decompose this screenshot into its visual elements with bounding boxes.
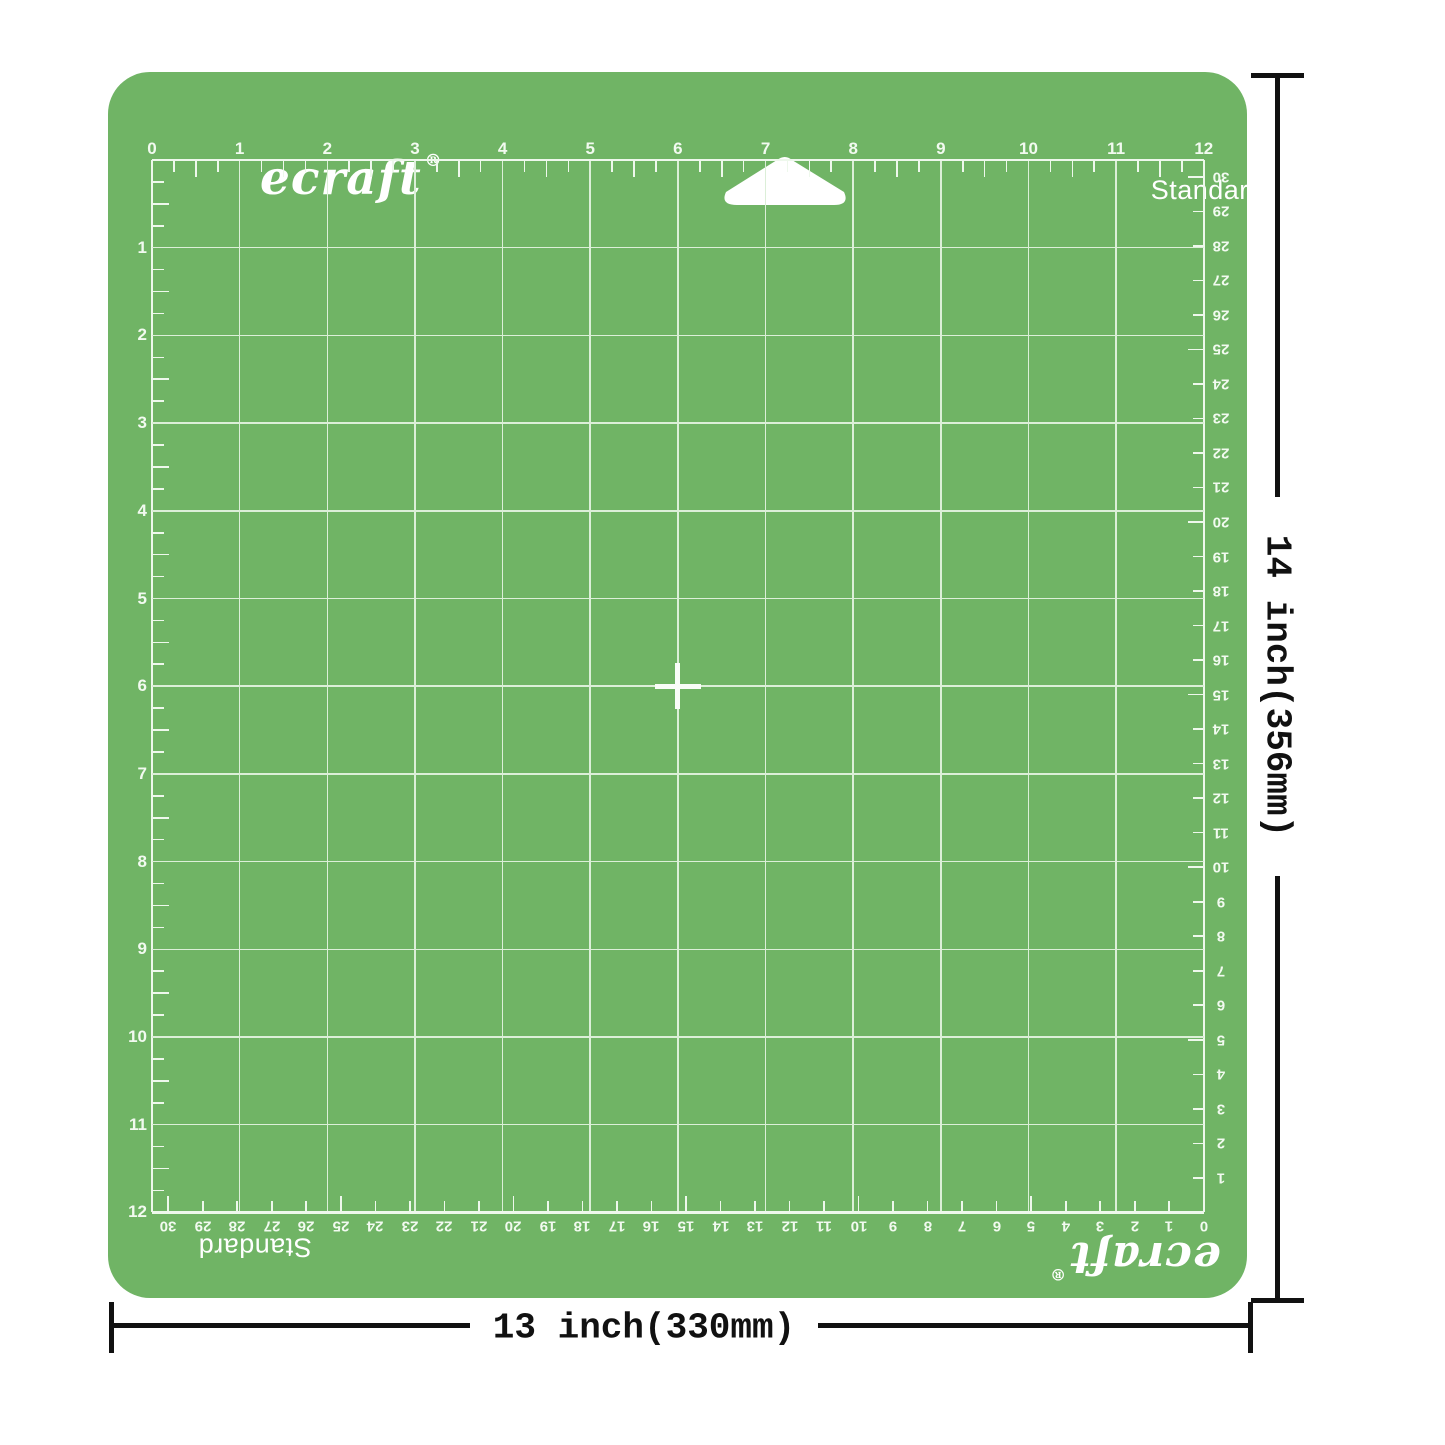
bottom-cm-number: 7 (958, 1218, 966, 1235)
top-ruler-tick (217, 160, 219, 172)
left-ruler-number: 4 (138, 501, 147, 521)
grid-line-horizontal (152, 247, 1204, 249)
bottom-cm-number: 6 (993, 1218, 1001, 1235)
right-cm-tick (1193, 245, 1204, 247)
right-cm-number: 14 (1212, 721, 1229, 738)
left-ruler-tick (152, 269, 164, 271)
top-ruler-tick (633, 160, 635, 177)
right-cm-number: 19 (1212, 548, 1229, 565)
left-ruler-tick (152, 751, 164, 753)
top-ruler-tick (1093, 160, 1095, 172)
top-ruler-tick (392, 160, 394, 172)
left-ruler-tick (152, 817, 169, 819)
right-cm-number: 9 (1217, 893, 1225, 910)
bottom-cm-number: 5 (1027, 1218, 1035, 1235)
left-ruler-tick (152, 554, 169, 556)
registered-trademark-bottom-icon: ® (1049, 1265, 1066, 1284)
top-ruler-tick (787, 160, 789, 172)
top-ruler-tick (611, 160, 613, 172)
left-ruler-tick (152, 1190, 164, 1192)
bottom-cm-tick (375, 1201, 377, 1212)
right-cm-tick (1193, 728, 1204, 730)
top-ruler-tick (458, 160, 460, 177)
right-cm-number: 24 (1212, 375, 1229, 392)
bottom-cm-tick (167, 1196, 169, 1212)
left-ruler-number: 1 (138, 238, 147, 258)
width-dimension-right-cap (1248, 1302, 1253, 1353)
right-cm-number: 1 (1217, 1169, 1225, 1186)
bottom-cm-number: 16 (643, 1218, 660, 1235)
top-ruler-tick (721, 160, 723, 177)
bottom-cm-number: 8 (923, 1218, 931, 1235)
grid-line-horizontal (152, 422, 1204, 424)
left-ruler-tick (152, 576, 164, 578)
right-cm-tick (1193, 625, 1204, 627)
height-dimension-line-lower (1275, 876, 1280, 1303)
right-cm-tick (1193, 1143, 1204, 1145)
right-cm-tick (1193, 1004, 1204, 1006)
bottom-cm-number: 25 (332, 1218, 349, 1235)
right-cm-tick (1193, 280, 1204, 282)
top-ruler-tick (743, 160, 745, 172)
bottom-cm-number: 21 (471, 1218, 488, 1235)
right-cm-tick (1188, 694, 1204, 696)
right-cm-tick (1193, 970, 1204, 972)
top-ruler-number: 2 (323, 139, 332, 159)
right-cm-tick (1193, 314, 1204, 316)
bottom-cm-tick (892, 1201, 894, 1212)
right-cm-number: 5 (1217, 1031, 1225, 1048)
right-cm-tick (1193, 418, 1204, 420)
left-ruler-tick (152, 466, 169, 468)
top-ruler-tick (655, 160, 657, 172)
top-ruler-tick (830, 160, 832, 172)
left-ruler-tick (152, 488, 164, 490)
top-ruler-tick (918, 160, 920, 172)
bottom-cm-tick (305, 1201, 307, 1212)
top-ruler-tick (1159, 160, 1161, 177)
top-ruler-tick (568, 160, 570, 172)
right-cm-number: 22 (1212, 444, 1229, 461)
left-ruler-tick (152, 707, 164, 709)
center-crosshair-vertical (675, 663, 680, 709)
bottom-cm-tick (1099, 1201, 1101, 1212)
top-ruler-tick (1181, 160, 1183, 172)
bottom-cm-number: 11 (816, 1218, 832, 1235)
left-ruler-tick (152, 642, 169, 644)
right-cm-tick (1193, 590, 1204, 592)
top-ruler-number: 1 (235, 139, 244, 159)
bottom-cm-number: 24 (367, 1218, 384, 1235)
right-cm-tick (1193, 659, 1204, 661)
right-cm-number: 7 (1217, 962, 1225, 979)
bottom-cm-tick (858, 1196, 860, 1212)
left-ruler-tick (152, 795, 164, 797)
left-ruler-tick (152, 1080, 169, 1082)
height-dimension-bottom-cap (1251, 1298, 1304, 1303)
top-ruler-tick (524, 160, 526, 172)
right-cm-tick (1193, 452, 1204, 454)
bottom-cm-number: 23 (401, 1218, 418, 1235)
right-cm-tick (1193, 901, 1204, 903)
right-cm-tick (1193, 763, 1204, 765)
width-dimension-line-right (818, 1323, 1253, 1328)
bottom-cm-tick (547, 1201, 549, 1212)
right-cm-tick (1193, 1177, 1204, 1179)
right-cm-number: 20 (1212, 514, 1229, 531)
bottom-cm-number: 18 (574, 1218, 591, 1235)
width-dimension-line-left (109, 1323, 470, 1328)
top-ruler-tick (546, 160, 548, 177)
bottom-cm-tick (1030, 1196, 1032, 1212)
right-cm-tick (1193, 935, 1204, 937)
left-ruler-tick (152, 992, 169, 994)
left-ruler-tick (152, 225, 164, 227)
bottom-cm-tick (478, 1201, 480, 1212)
top-ruler-tick (1006, 160, 1008, 172)
bottom-cm-tick (444, 1201, 446, 1212)
left-ruler-tick (152, 444, 164, 446)
right-cm-number: 3 (1217, 1100, 1225, 1117)
left-ruler-number: 5 (138, 589, 147, 609)
height-dimension-line-upper (1275, 73, 1280, 497)
bottom-cm-number: 30 (160, 1218, 177, 1235)
right-cm-number: 27 (1212, 272, 1229, 289)
grid-line-horizontal (152, 598, 1204, 600)
bottom-cm-tick (1168, 1201, 1170, 1212)
bottom-cm-number: 28 (229, 1218, 246, 1235)
top-ruler-tick (874, 160, 876, 172)
top-ruler-number: 3 (410, 139, 419, 159)
top-ruler-tick (173, 160, 175, 172)
bottom-cm-tick (720, 1201, 722, 1212)
brand-logo-bottom-text: ecraft (1069, 1232, 1221, 1283)
top-ruler-tick (1050, 160, 1052, 172)
bottom-cm-tick (685, 1196, 687, 1212)
grid-line-horizontal (152, 1036, 1204, 1038)
grid-line-horizontal (152, 159, 1204, 162)
bottom-cm-number: 0 (1200, 1218, 1208, 1235)
grid-line-horizontal (152, 861, 1204, 863)
top-ruler-tick (962, 160, 964, 172)
left-ruler-tick (152, 291, 169, 293)
bottom-cm-tick (582, 1201, 584, 1212)
bottom-cm-tick (236, 1201, 238, 1212)
top-ruler-number: 11 (1107, 139, 1125, 159)
left-ruler-tick (152, 1014, 164, 1016)
right-cm-number: 29 (1212, 203, 1229, 220)
right-cm-number: 17 (1212, 617, 1229, 634)
grid-line-horizontal (152, 335, 1204, 337)
cutting-mat: ecraft® Standard Standard ecraft® 012345… (108, 72, 1247, 1298)
right-cm-tick (1188, 176, 1204, 178)
product-image: ecraft® Standard Standard ecraft® 012345… (0, 0, 1445, 1445)
left-ruler-tick (152, 378, 169, 380)
right-cm-tick (1193, 1108, 1204, 1110)
left-ruler-tick (152, 181, 164, 183)
bottom-cm-tick (616, 1201, 618, 1212)
top-ruler-tick (283, 160, 285, 177)
grid-line-horizontal (152, 510, 1204, 512)
bottom-cm-tick (1134, 1201, 1136, 1212)
width-dimension-label: 13 inch(330mm) (493, 1308, 795, 1349)
variant-label-bottom: Standard (198, 1232, 312, 1263)
top-ruler-tick (699, 160, 701, 172)
left-ruler-number: 8 (138, 852, 147, 872)
bottom-cm-tick (651, 1201, 653, 1212)
right-cm-number: 23 (1212, 410, 1229, 427)
left-ruler-tick (152, 1058, 164, 1060)
bottom-cm-number: 10 (850, 1218, 867, 1235)
left-ruler-number: 2 (138, 325, 147, 345)
top-ruler-number: 5 (586, 139, 595, 159)
bottom-cm-tick (1065, 1201, 1067, 1212)
bottom-cm-number: 9 (889, 1218, 897, 1235)
left-ruler-tick (152, 927, 164, 929)
bottom-cm-tick (513, 1196, 515, 1212)
bottom-cm-number: 20 (505, 1218, 522, 1235)
left-ruler-tick (152, 663, 164, 665)
top-ruler-tick (261, 160, 263, 172)
right-cm-number: 26 (1212, 306, 1229, 323)
right-cm-tick (1188, 521, 1204, 523)
top-ruler-tick (195, 160, 197, 177)
grid-line-horizontal (152, 1211, 1204, 1214)
left-ruler-tick (152, 1146, 164, 1148)
right-cm-number: 2 (1217, 1135, 1225, 1152)
top-ruler-tick (370, 160, 372, 177)
bottom-cm-tick (1203, 1196, 1205, 1212)
top-ruler-tick (348, 160, 350, 172)
bottom-cm-number: 4 (1062, 1218, 1070, 1235)
left-ruler-tick (152, 620, 164, 622)
left-ruler-tick (152, 970, 164, 972)
top-ruler-number: 12 (1194, 139, 1213, 159)
top-ruler-number: 0 (147, 139, 156, 159)
top-ruler-number: 8 (848, 139, 857, 159)
brand-logo-bottom: ecraft® (1049, 1232, 1221, 1284)
bottom-cm-number: 26 (298, 1218, 315, 1235)
top-ruler-tick (896, 160, 898, 177)
left-ruler-tick (152, 532, 164, 534)
left-ruler-number: 7 (138, 764, 147, 784)
right-cm-number: 28 (1212, 237, 1229, 254)
right-cm-tick (1188, 349, 1204, 351)
top-ruler-tick (984, 160, 986, 177)
top-ruler-tick (1072, 160, 1074, 177)
right-cm-number: 10 (1212, 859, 1229, 876)
right-cm-tick (1193, 1074, 1204, 1076)
left-ruler-tick (152, 839, 164, 841)
bottom-cm-tick (789, 1201, 791, 1212)
left-ruler-tick (152, 883, 164, 885)
left-ruler-tick (152, 400, 164, 402)
top-ruler-number: 6 (673, 139, 682, 159)
bottom-cm-number: 2 (1131, 1218, 1139, 1235)
right-cm-number: 25 (1212, 341, 1229, 358)
left-ruler-tick (152, 313, 164, 315)
bottom-cm-tick (202, 1201, 204, 1212)
right-cm-number: 6 (1217, 997, 1225, 1014)
right-cm-number: 15 (1212, 686, 1229, 703)
right-cm-tick (1193, 487, 1204, 489)
bottom-cm-number: 22 (436, 1218, 453, 1235)
bottom-cm-number: 14 (712, 1218, 729, 1235)
right-cm-number: 12 (1212, 790, 1229, 807)
bottom-cm-tick (340, 1196, 342, 1212)
top-ruler-number: 10 (1019, 139, 1038, 159)
bottom-cm-number: 15 (678, 1218, 695, 1235)
top-ruler-tick (809, 160, 811, 177)
grid-line-horizontal (152, 1124, 1204, 1126)
left-ruler-tick (152, 1102, 164, 1104)
left-ruler-tick (152, 203, 169, 205)
right-cm-tick (1188, 1039, 1204, 1041)
right-cm-tick (1193, 797, 1204, 799)
right-cm-tick (1188, 866, 1204, 868)
left-ruler-tick (152, 357, 164, 359)
left-ruler-number: 9 (138, 939, 147, 959)
right-cm-number: 8 (1217, 928, 1225, 945)
top-ruler-tick (305, 160, 307, 172)
left-ruler-tick (152, 1168, 169, 1170)
left-ruler-tick (152, 729, 169, 731)
left-ruler-number: 3 (138, 413, 147, 433)
bottom-cm-tick (271, 1201, 273, 1212)
top-ruler-number: 7 (761, 139, 770, 159)
bottom-cm-tick (961, 1201, 963, 1212)
right-cm-number: 18 (1212, 583, 1229, 600)
right-cm-number: 21 (1212, 479, 1229, 496)
bottom-cm-number: 3 (1096, 1218, 1104, 1235)
top-ruler-number: 9 (936, 139, 945, 159)
bottom-cm-number: 17 (609, 1218, 626, 1235)
bottom-cm-number: 29 (194, 1218, 211, 1235)
grid-line-horizontal (152, 949, 1204, 951)
bottom-cm-tick (996, 1201, 998, 1212)
right-cm-tick (1193, 211, 1204, 213)
top-ruler-number: 4 (498, 139, 507, 159)
bottom-cm-tick (927, 1201, 929, 1212)
bottom-cm-number: 19 (540, 1218, 557, 1235)
bottom-cm-tick (823, 1201, 825, 1212)
left-ruler-number: 6 (138, 676, 147, 696)
right-cm-tick (1193, 556, 1204, 558)
top-ruler-tick (480, 160, 482, 172)
right-cm-tick (1193, 383, 1204, 385)
right-cm-number: 30 (1212, 168, 1229, 185)
grid-line-horizontal (152, 773, 1204, 775)
bottom-cm-tick (754, 1201, 756, 1212)
bottom-cm-number: 12 (781, 1218, 798, 1235)
left-ruler-number: 12 (128, 1202, 147, 1222)
right-cm-tick (1193, 832, 1204, 834)
bottom-cm-tick (409, 1201, 411, 1212)
left-ruler-number: 10 (128, 1027, 147, 1047)
top-ruler-tick (1137, 160, 1139, 172)
right-cm-number: 11 (1213, 824, 1229, 841)
bottom-cm-number: 27 (263, 1218, 280, 1235)
bottom-cm-number: 13 (747, 1218, 764, 1235)
top-ruler-tick (436, 160, 438, 172)
height-dimension-label: 14 inch(356mm) (1257, 535, 1298, 837)
right-cm-number: 16 (1212, 652, 1229, 669)
left-ruler-tick (152, 905, 169, 907)
variant-label-top: Standard (1150, 175, 1265, 206)
right-cm-number: 4 (1217, 1066, 1225, 1083)
bottom-cm-number: 1 (1165, 1218, 1173, 1235)
left-ruler-number: 11 (129, 1115, 147, 1135)
right-cm-number: 13 (1212, 755, 1229, 772)
